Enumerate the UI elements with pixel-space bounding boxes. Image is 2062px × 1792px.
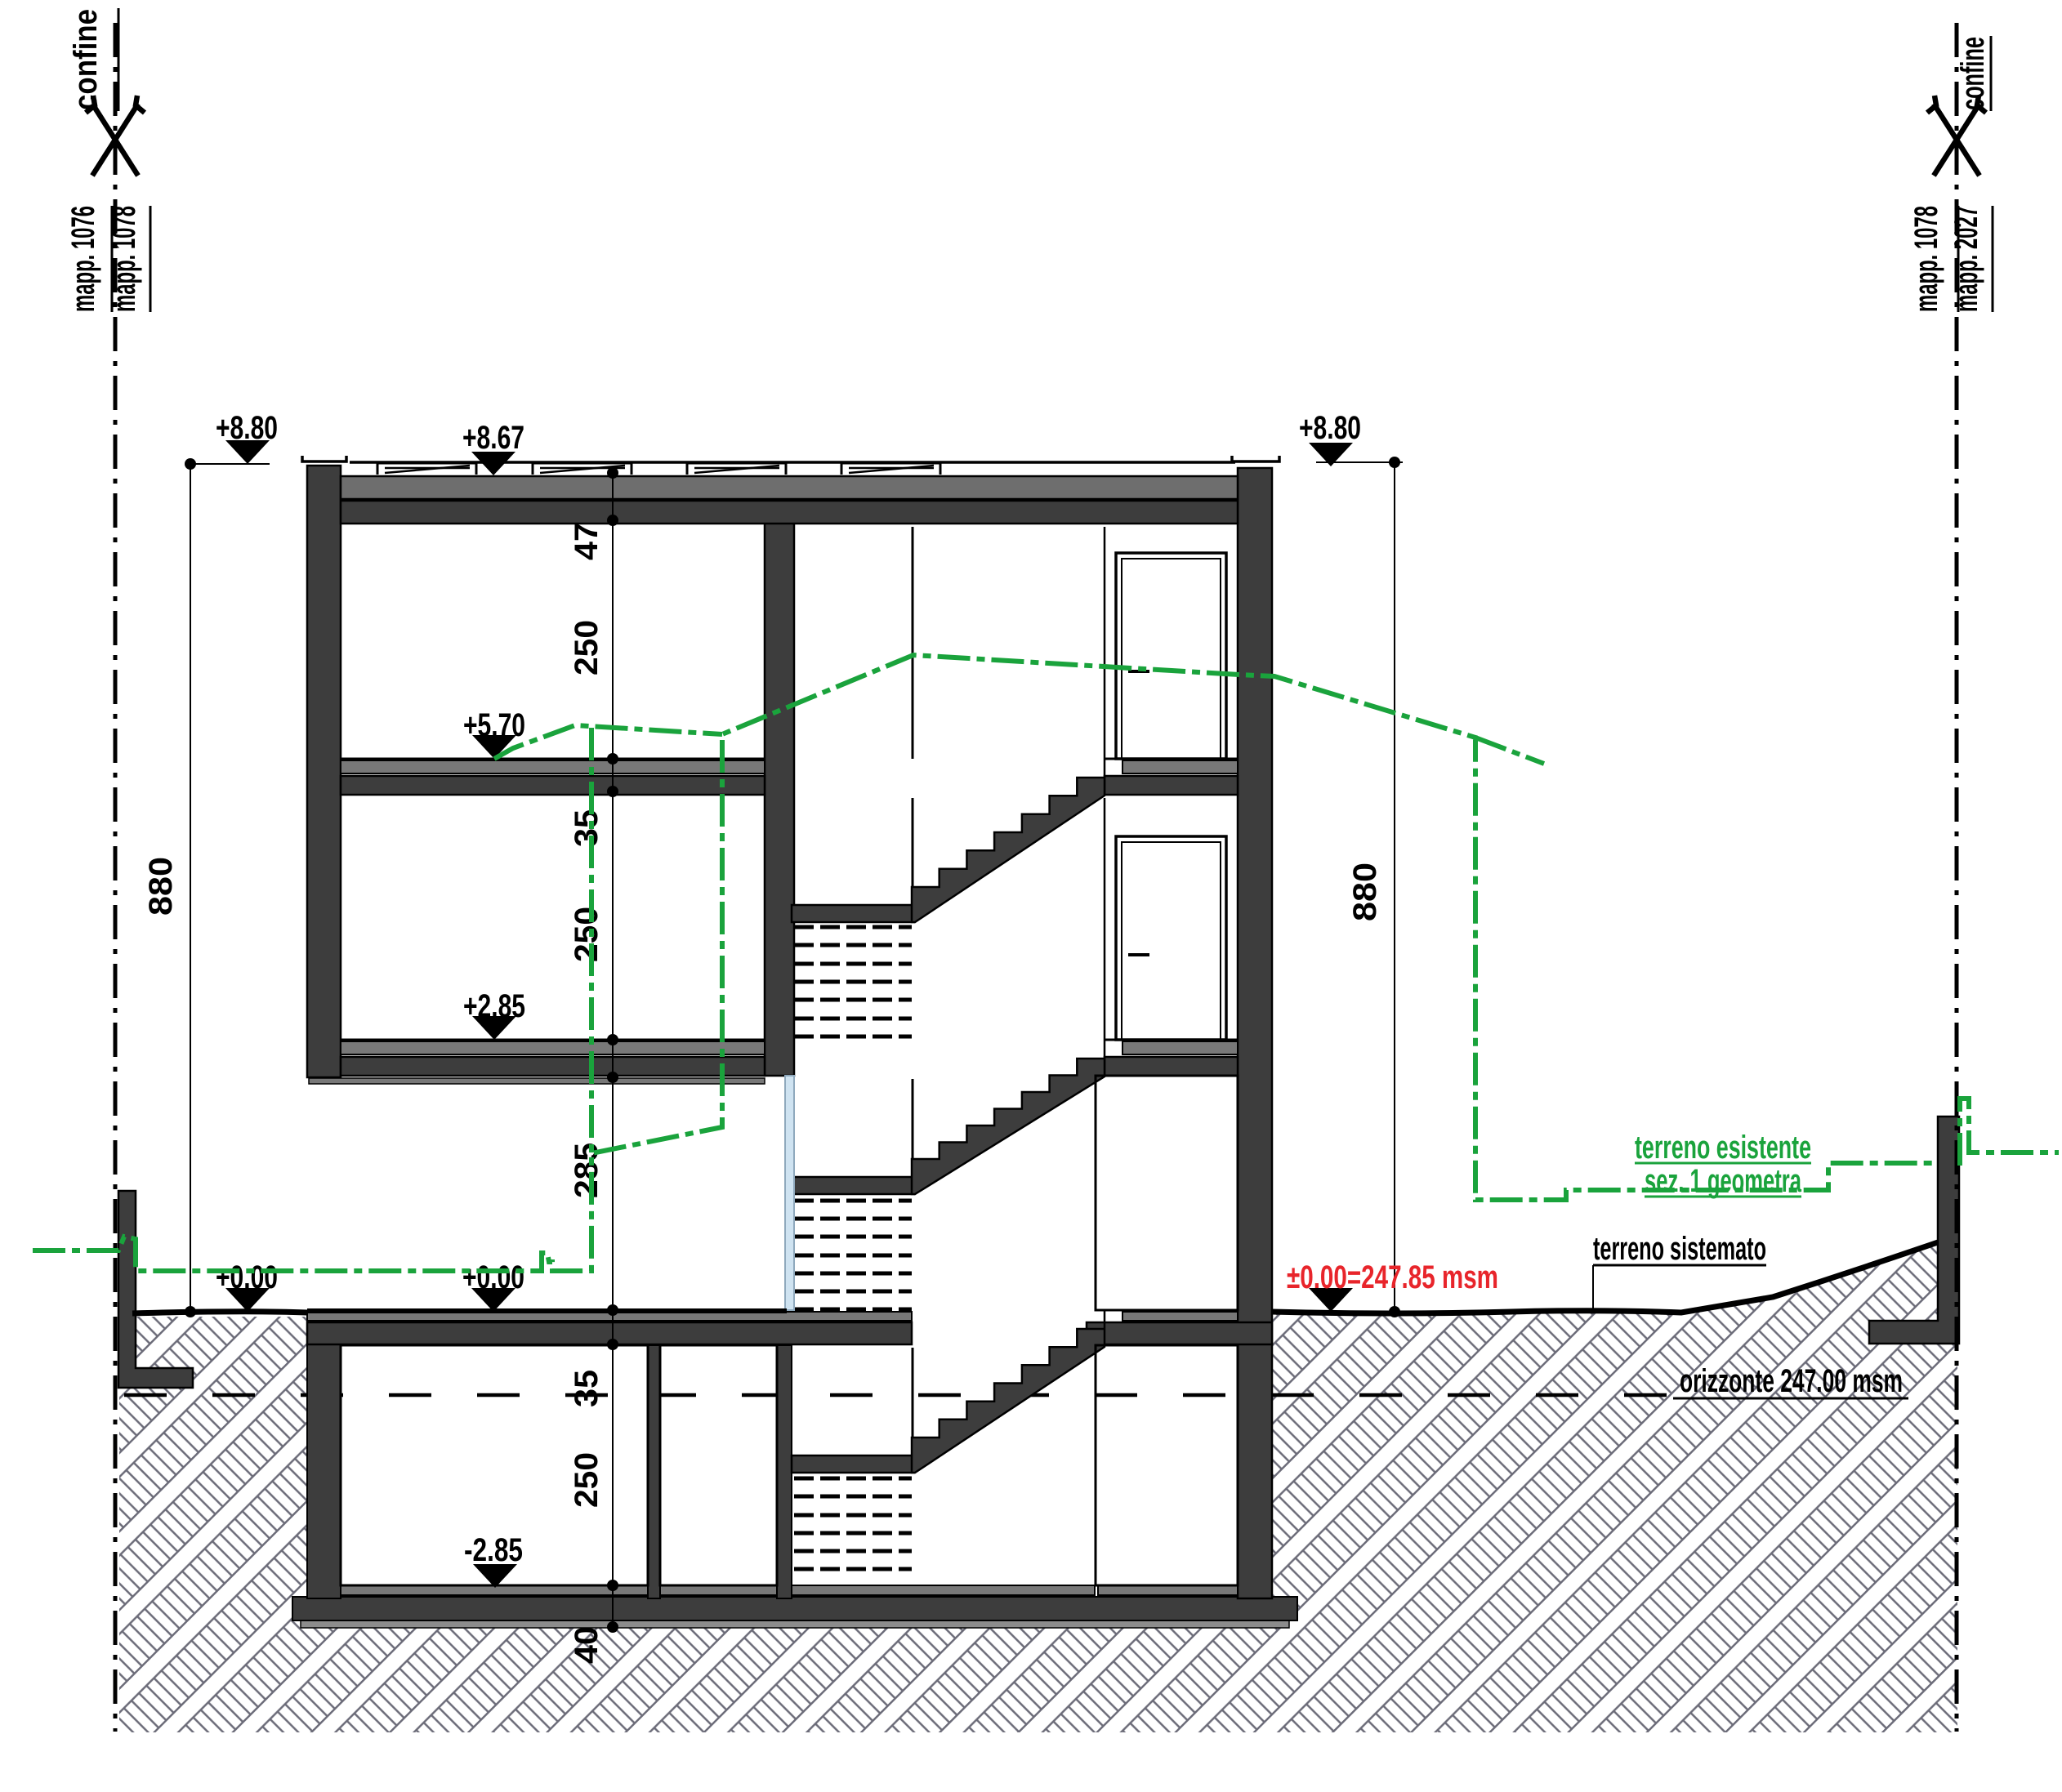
svg-text:confine: confine <box>1955 37 1991 110</box>
svg-text:±0.00=247.85 msm: ±0.00=247.85 msm <box>1287 1259 1498 1295</box>
svg-text:orizzonte 247.00 msm: orizzonte 247.00 msm <box>1680 1363 1903 1399</box>
svg-text:250: 250 <box>569 907 605 962</box>
svg-text:+8.80: +8.80 <box>1299 410 1361 446</box>
svg-text:+8.67: +8.67 <box>462 420 524 456</box>
svg-text:mapp. 1076: mapp. 1076 <box>65 206 101 312</box>
svg-text:250: 250 <box>569 1452 605 1508</box>
svg-text:mapp. 1078: mapp. 1078 <box>1908 206 1944 312</box>
svg-text:40: 40 <box>569 1626 605 1664</box>
svg-text:880: 880 <box>143 857 179 916</box>
svg-text:880: 880 <box>1347 863 1383 921</box>
svg-text:250: 250 <box>569 620 605 675</box>
svg-text:terreno esistente: terreno esistente <box>1635 1130 1811 1166</box>
svg-text:-2.85: -2.85 <box>464 1532 523 1568</box>
svg-text:mapp. 1078: mapp. 1078 <box>106 206 142 312</box>
svg-text:mapp. 2027: mapp. 2027 <box>1948 206 1984 312</box>
svg-text:sez. 1 geometra: sez. 1 geometra <box>1645 1163 1801 1199</box>
svg-text:47: 47 <box>569 523 605 560</box>
svg-text:confine: confine <box>68 9 104 110</box>
svg-text:35: 35 <box>569 809 605 847</box>
svg-text:terreno sistemato: terreno sistemato <box>1593 1231 1766 1267</box>
svg-text:35: 35 <box>569 1370 605 1407</box>
